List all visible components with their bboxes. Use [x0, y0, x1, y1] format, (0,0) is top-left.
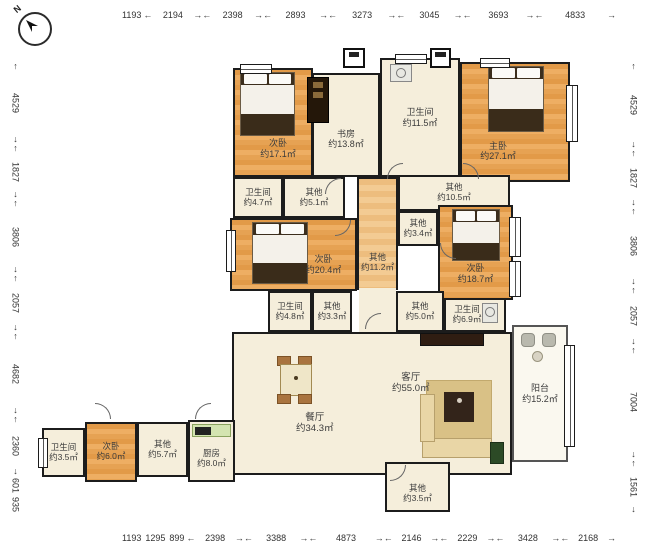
room-label: 主卧约27.1㎡ — [480, 141, 516, 162]
dim-segment: 2057 — [11, 274, 21, 332]
dim-segment: 2168 — [560, 533, 616, 543]
room-other-50: 其他约5.0㎡ — [396, 291, 444, 332]
room-label-dining: 餐厅约34.3㎡ — [296, 412, 334, 435]
sofa-armchair — [420, 394, 435, 442]
double-bed — [252, 222, 308, 284]
room-label: 其他约3.4㎡ — [404, 219, 433, 239]
dim-segment: 3428 — [495, 533, 560, 543]
dim-segment: 2057 — [629, 286, 639, 346]
dimension-line-top: 1193 2194 2398 2893 3273 3045 3693 4833 — [120, 8, 616, 21]
coffee-table — [444, 392, 474, 422]
dim-segment: 2146 — [384, 533, 440, 543]
room-label: 卫生间约6.9㎡ — [453, 305, 482, 325]
room-kitchen: 厨房约8.0㎡ — [188, 420, 235, 482]
plant-pot — [521, 333, 535, 347]
window — [480, 58, 510, 68]
window — [240, 64, 272, 74]
compass: N — [14, 8, 50, 44]
room-other-57: 其他约5.7㎡ — [137, 422, 188, 477]
dim-segment: 3806 — [11, 199, 21, 274]
dimension-line-bottom: 1193 1295 899 2398 3388 4873 2146 2229 3… — [120, 531, 616, 544]
dim-segment: 2398 — [202, 10, 263, 20]
stove — [195, 427, 211, 435]
double-bed — [488, 66, 544, 132]
dim-segment: 2229 — [439, 533, 495, 543]
dim-segment: 2893 — [263, 10, 328, 20]
dim-segment: 4529 — [11, 62, 21, 144]
room-balcony: 阳台约15.2㎡ — [512, 325, 568, 462]
washing-machine — [482, 303, 498, 323]
plant-pot — [542, 333, 556, 347]
room-label: 其他约5.7㎡ — [148, 440, 177, 460]
dim-segment: 3273 — [328, 10, 396, 20]
room-label: 次卧约6.0㎡ — [97, 442, 126, 462]
dim-segment: 1827 — [11, 144, 21, 200]
wardrobe — [307, 77, 329, 123]
room-label: 书房约13.8㎡ — [328, 129, 364, 150]
room-label: 其他约5.0㎡ — [406, 302, 435, 322]
room-label: 卫生间约11.5㎡ — [403, 107, 438, 128]
room-bath-35: 卫生间约3.5㎡ — [42, 428, 85, 477]
kitchen-counter — [192, 424, 231, 437]
dim-segment: 4529 — [629, 62, 639, 149]
dining-table — [274, 356, 318, 404]
door-arc — [95, 403, 111, 419]
room-master-bedroom: 主卧约27.1㎡ — [460, 62, 570, 182]
tv-console — [420, 333, 484, 346]
dim-value: 1193 — [120, 10, 143, 20]
room-bedroom-60: 次卧约6.0㎡ — [85, 422, 137, 482]
room-label: 其他约3.5㎡ — [403, 484, 432, 504]
dim-segment: 2398 — [186, 533, 243, 543]
room-label: 其他约3.3㎡ — [318, 302, 347, 322]
window — [566, 85, 578, 142]
window — [226, 230, 236, 272]
dimension-line-left: 4529 1827 3806 2057 4682 2360 601 935 — [8, 62, 23, 514]
shaft-box — [430, 48, 451, 68]
window — [564, 345, 575, 447]
room-label: 卫生间约4.7㎡ — [244, 188, 273, 208]
room-label: 厨房约8.0㎡ — [197, 449, 226, 469]
north-label: N — [12, 3, 23, 15]
room-label: 次卧约20.4㎡ — [306, 254, 342, 275]
room-bath-115: 卫生间约11.5㎡ — [380, 58, 460, 177]
room-bath-69: 卫生间约6.9㎡ — [444, 298, 506, 332]
room-bedroom-17: 次卧约17.1㎡ — [233, 68, 313, 177]
window — [509, 217, 521, 257]
dim-segment: 3806 — [629, 207, 639, 286]
shaft-box — [343, 48, 365, 68]
dim-segment: 2360 — [11, 415, 21, 476]
dimension-line-right: 4529 1827 3806 2057 7004 1561 — [626, 62, 641, 514]
dim-value: 899 — [167, 533, 186, 543]
room-label-living: 客厅约55.0㎡ — [392, 372, 430, 395]
plant-pot — [532, 351, 543, 362]
dim-segment: 4873 — [308, 533, 383, 543]
floorplan-canvas: N 1193 2194 2398 2893 3273 3045 3693 483… — [0, 0, 648, 555]
room-label: 其他约5.1㎡ — [300, 188, 329, 208]
dim-segment: 4682 — [11, 332, 21, 415]
room-bath-48: 卫生间约4.8㎡ — [268, 291, 312, 332]
door-arc — [195, 403, 211, 419]
room-label: 次卧约17.1㎡ — [260, 138, 296, 159]
dim-segment: 4833 — [534, 10, 616, 20]
room-label: 其他约11.2㎡ — [361, 253, 394, 273]
double-bed — [240, 72, 295, 136]
window — [509, 261, 521, 297]
dim-segment: 2194 — [143, 10, 202, 20]
room-corridor-112: 其他约11.2㎡ — [357, 177, 398, 290]
dim-value: 1193 — [120, 533, 143, 543]
window — [395, 54, 427, 64]
washing-machine — [390, 64, 412, 82]
dim-value: 935 — [11, 495, 21, 514]
room-bath-47: 卫生间约4.7㎡ — [233, 177, 283, 218]
dim-segment: 3388 — [244, 533, 309, 543]
dim-value: 1295 — [143, 533, 167, 543]
room-label: 卫生间约3.5㎡ — [49, 443, 78, 463]
room-label: 其他约10.5㎡ — [437, 183, 471, 203]
north-arrow-icon — [23, 17, 41, 35]
dim-segment: 3045 — [396, 10, 462, 20]
plant — [490, 442, 504, 464]
dim-segment: 3693 — [462, 10, 534, 20]
floorplan: 次卧约17.1㎡ 书房约13.8㎡ 卫生间约11.5㎡ 主卧约27.1㎡ — [35, 45, 615, 515]
double-bed — [452, 209, 500, 261]
dim-value: 601 — [11, 476, 21, 495]
room-label: 卫生间约4.8㎡ — [276, 302, 305, 322]
room-label: 阳台约15.2㎡ — [522, 383, 558, 404]
dim-segment: 7004 — [629, 346, 639, 459]
room-other-34: 其他约3.4㎡ — [398, 211, 438, 246]
window — [38, 438, 48, 468]
room-label: 次卧约18.7㎡ — [458, 263, 494, 284]
dim-segment: 1561 — [629, 459, 639, 514]
room-living-dining: 客厅约55.0㎡ 餐厅约34.3㎡ — [232, 332, 512, 475]
dim-segment: 1827 — [629, 149, 639, 207]
room-other-33: 其他约3.3㎡ — [312, 291, 352, 332]
